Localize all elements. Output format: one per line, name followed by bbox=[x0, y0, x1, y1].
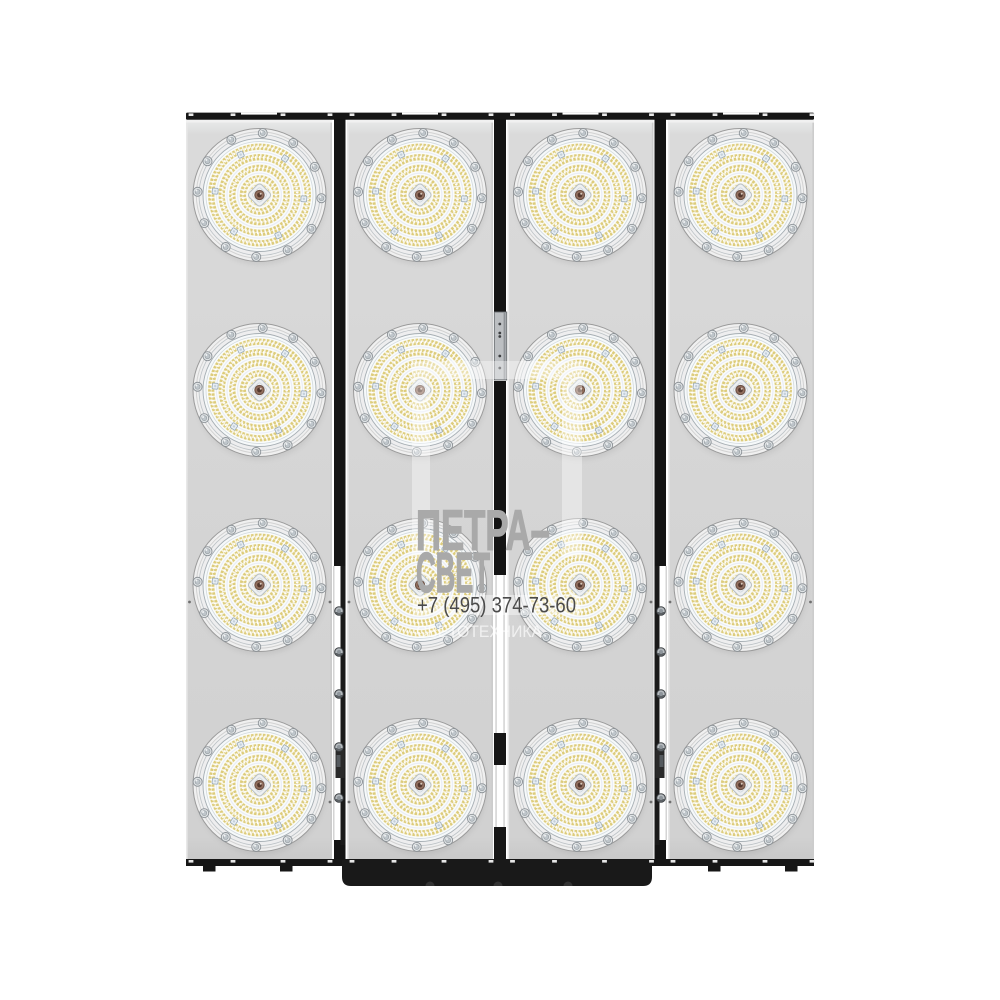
svg-text:+7 (495) 374-73-60: +7 (495) 374-73-60 bbox=[417, 593, 576, 618]
svg-text:СВЕТОТЕХНИКА: СВЕТОТЕХНИКА bbox=[416, 622, 543, 641]
